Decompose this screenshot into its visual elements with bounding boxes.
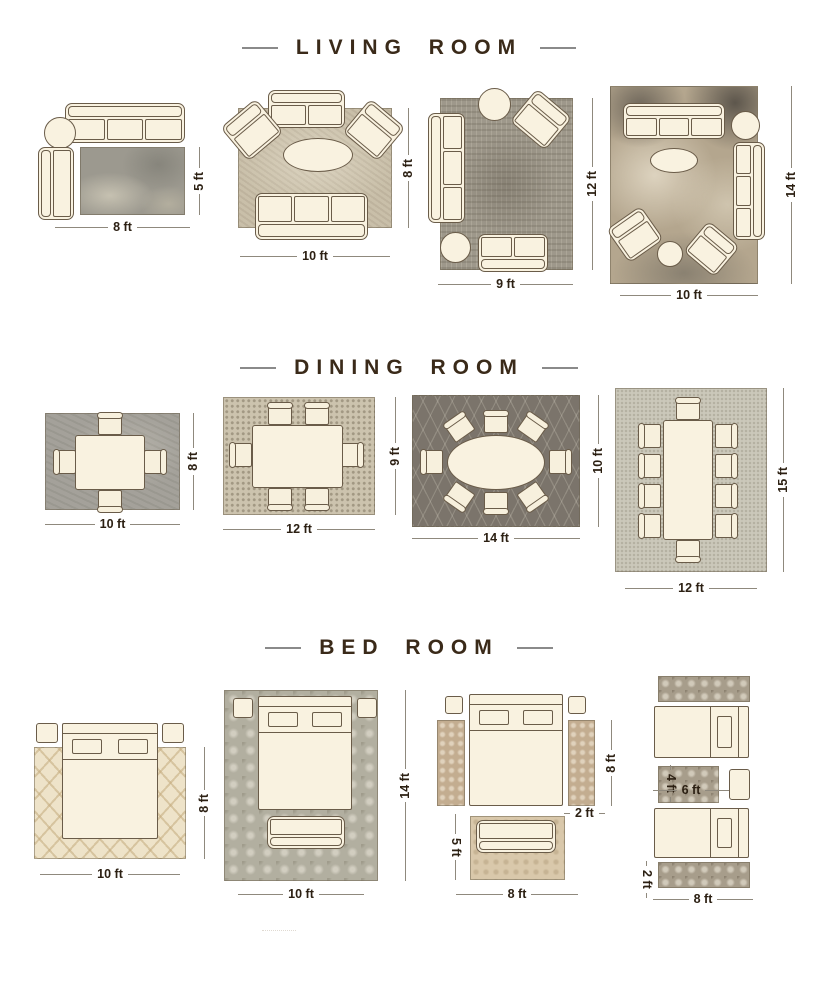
dim-line — [128, 874, 180, 875]
sofa-seats — [481, 237, 545, 257]
living-layout-9x12: 9 ft 12 ft — [428, 88, 608, 298]
dining-chair — [641, 454, 661, 478]
title-dash — [242, 47, 278, 49]
dim-line — [653, 790, 677, 791]
round-side-table — [44, 117, 76, 149]
dining-chair — [676, 540, 700, 560]
dim-line — [240, 256, 297, 257]
dim-line — [520, 284, 573, 285]
cushion — [258, 196, 292, 222]
dim-line — [592, 201, 593, 270]
dimension-width: 10 ft — [240, 250, 390, 263]
dining-chair — [98, 415, 122, 435]
sofa-back — [479, 841, 553, 850]
dining-chair — [232, 443, 252, 467]
dim-line — [670, 797, 671, 802]
dim-line — [646, 861, 647, 866]
nightstand — [233, 698, 253, 718]
dimension-height: 5 ft — [448, 814, 463, 880]
dining-chair — [305, 405, 329, 425]
dim-line — [791, 202, 792, 284]
dimension-height: 15 ft — [776, 388, 791, 572]
sofa-seats — [258, 196, 365, 222]
dimension-height: 8 ft — [186, 413, 201, 510]
section-title-bed-room: BED ROOM — [0, 636, 818, 660]
dining-layout-12x15: 12 ft 15 ft — [615, 388, 810, 603]
bed-blanket — [63, 760, 157, 838]
title-dash — [517, 647, 553, 649]
dim-line — [408, 181, 409, 228]
dim-line — [653, 899, 689, 900]
dim-line — [40, 874, 92, 875]
runner-rug — [437, 720, 465, 806]
dim-line — [405, 802, 406, 881]
dimension-height: 8 ft — [197, 747, 212, 859]
cushion — [736, 176, 751, 205]
dimension-height: 9 ft — [388, 397, 403, 515]
bed-layout-10x8: 10 ft 8 ft — [20, 695, 220, 895]
sofa-back — [68, 106, 182, 117]
pillow-row — [259, 707, 351, 733]
pillow — [479, 710, 509, 725]
dimension-width: 10 ft — [238, 888, 364, 901]
dim-line — [598, 395, 599, 444]
dim-line — [137, 227, 190, 228]
dim-line — [783, 388, 784, 463]
dimension-height: 12 ft — [585, 98, 600, 270]
dining-table — [75, 435, 145, 490]
dining-chair — [341, 443, 361, 467]
bed-blanket — [655, 707, 710, 757]
pillow — [717, 716, 732, 748]
dim-line — [223, 529, 281, 530]
sofa — [255, 193, 368, 240]
cushion — [308, 105, 343, 125]
bed-layout-runners: 8 ft 2 ft 5 ft 8 ft — [428, 692, 623, 907]
sofa-back — [431, 116, 441, 220]
dimension-width: 10 ft — [40, 868, 180, 881]
section-title-text: DINING ROOM — [294, 356, 524, 380]
cushion — [270, 819, 342, 835]
sofa-back — [626, 106, 722, 116]
round-side-table — [440, 232, 471, 263]
dim-line — [395, 469, 396, 515]
round-side-table — [657, 241, 683, 267]
dining-layout-14x10: 14 ft 10 ft — [410, 390, 610, 550]
runner-rug — [658, 676, 750, 702]
dimension-width: 8 ft — [653, 893, 753, 906]
pillow — [72, 739, 102, 754]
pillow-row — [63, 734, 157, 760]
section-title-living-room: LIVING ROOM — [0, 36, 818, 60]
dim-line — [709, 588, 757, 589]
dining-chair — [715, 484, 735, 508]
pillow — [268, 712, 298, 727]
oval-dining-table — [447, 435, 545, 490]
sofa-seats — [479, 823, 553, 839]
dim-line — [531, 894, 578, 895]
nightstand — [568, 696, 586, 714]
dining-table — [663, 420, 713, 540]
cushion — [145, 119, 182, 140]
dimension-runner-width: 2 ft — [564, 807, 604, 820]
living-layout-8x5: 8 ft 5 ft — [30, 95, 230, 245]
dim-line — [598, 478, 599, 527]
dim-line — [670, 765, 671, 770]
dimension-runner-height: 8 ft — [604, 720, 619, 806]
dim-line — [438, 284, 491, 285]
sofa — [428, 113, 465, 223]
title-dash — [540, 47, 576, 49]
pillow — [118, 739, 148, 754]
rug-size-guide: LIVING ROOM 8 ft 5 ft — [0, 0, 818, 1000]
pillow — [523, 710, 553, 725]
sofa-back — [41, 150, 51, 217]
dim-line — [317, 529, 375, 530]
cushion — [691, 118, 722, 136]
title-dash — [240, 367, 276, 369]
dining-chair — [484, 413, 508, 433]
cushion — [331, 196, 365, 222]
cushion — [659, 118, 690, 136]
coffee-table — [650, 148, 698, 173]
dim-line — [204, 747, 205, 790]
sofa-back — [271, 93, 342, 103]
bed-blanket — [655, 809, 710, 857]
runner-rug — [658, 862, 750, 888]
dim-line — [611, 720, 612, 750]
dim-line — [319, 894, 364, 895]
dim-line — [625, 588, 673, 589]
round-side-table — [478, 88, 511, 121]
sofa-seats — [736, 145, 751, 237]
sofa-seats — [626, 118, 722, 136]
cushion — [107, 119, 144, 140]
dim-line — [408, 108, 409, 155]
cushion — [479, 823, 553, 839]
dimension-height: 5 ft — [192, 147, 207, 215]
dim-line — [620, 295, 671, 296]
dimension-height: 8 ft — [401, 108, 416, 228]
dim-line — [333, 256, 390, 257]
dim-line — [611, 776, 612, 806]
sofa-back — [258, 224, 365, 237]
nightstand — [36, 723, 58, 743]
dimension-width: 8 ft — [55, 221, 190, 234]
dimension-width: 10 ft — [45, 518, 180, 531]
dimension-height: 10 ft — [591, 395, 606, 527]
bed — [258, 696, 352, 810]
twin-bed — [654, 808, 749, 858]
dining-chair — [484, 492, 508, 512]
dim-line — [204, 816, 205, 859]
bed — [62, 723, 158, 839]
pillow — [312, 712, 342, 727]
dining-chair — [641, 424, 661, 448]
dimension-height: 14 ft — [784, 86, 799, 284]
dining-chair — [305, 488, 329, 508]
dining-chair — [641, 484, 661, 508]
dining-chair — [676, 400, 700, 420]
dining-layout-10x8: 10 ft 8 ft — [40, 400, 215, 540]
dim-line — [717, 899, 753, 900]
dim-line — [238, 894, 283, 895]
faint-smudge — [262, 930, 296, 934]
dimension-width: 10 ft — [620, 289, 758, 302]
dim-line — [592, 98, 593, 167]
dining-table — [252, 425, 343, 488]
dimension-width: 9 ft — [438, 278, 573, 291]
sofa-seats — [53, 150, 71, 217]
section-title-text: LIVING ROOM — [296, 36, 522, 60]
headboard — [63, 724, 157, 734]
sofa-seats — [271, 105, 342, 125]
nightstand — [162, 723, 184, 743]
sofa — [65, 103, 185, 143]
dimension-height: 14 ft — [398, 690, 413, 881]
dining-layout-12x9: 12 ft 9 ft — [220, 392, 410, 547]
dining-chair — [98, 490, 122, 510]
dimension-accent-width: 6 ft — [653, 784, 729, 797]
sofa — [623, 103, 725, 139]
loveseat — [478, 234, 548, 272]
sofa-back — [481, 259, 545, 269]
dimension-width: 12 ft — [223, 523, 375, 536]
dining-chair — [641, 514, 661, 538]
headboard — [470, 695, 562, 705]
dim-line — [455, 860, 456, 880]
round-side-table — [731, 111, 760, 140]
title-dash — [265, 647, 301, 649]
headboard — [259, 697, 351, 707]
pillow-section — [710, 809, 738, 857]
dimension-width: 8 ft — [456, 888, 578, 901]
dining-chair — [715, 514, 735, 538]
dim-line — [193, 413, 194, 448]
dim-line — [646, 893, 647, 898]
headboard — [738, 809, 748, 857]
dim-line — [599, 813, 605, 814]
dimension-width: 12 ft — [625, 582, 757, 595]
section-title-text: BED ROOM — [319, 636, 499, 660]
cushion — [736, 208, 751, 237]
dim-line — [45, 524, 95, 525]
dining-chair — [144, 450, 164, 474]
coffee-table — [283, 138, 353, 172]
dim-line — [130, 524, 180, 525]
dim-line — [55, 227, 108, 228]
dining-chair — [715, 424, 735, 448]
twin-bed — [654, 706, 749, 758]
dimension-runner-height: 2 ft — [639, 861, 654, 889]
dim-line — [405, 690, 406, 769]
bed-blanket — [470, 731, 562, 805]
cushion — [736, 145, 751, 174]
dim-line — [455, 814, 456, 834]
dim-line — [705, 790, 729, 791]
dim-line — [199, 194, 200, 215]
cushion — [481, 237, 512, 257]
living-layout-10x8: 10 ft 8 ft — [225, 88, 425, 268]
dining-chair — [268, 405, 292, 425]
nightstand — [729, 769, 750, 800]
dining-chair — [715, 454, 735, 478]
dim-line — [791, 86, 792, 168]
bed — [469, 694, 563, 806]
cushion — [443, 187, 462, 220]
dim-line — [199, 147, 200, 168]
bed-layout-twin-runners: 4 ft 6 ft 2 ft 8 ft — [635, 672, 815, 912]
area-rug — [80, 147, 185, 215]
sofa — [733, 142, 765, 240]
cushion — [294, 196, 328, 222]
title-dash — [542, 367, 578, 369]
nightstand — [357, 698, 377, 718]
runner-rug — [568, 720, 595, 806]
nightstand — [445, 696, 463, 714]
section-title-dining-room: DINING ROOM — [0, 356, 818, 380]
cushion — [443, 151, 462, 184]
sofa-back — [270, 837, 342, 846]
armchair — [38, 147, 74, 220]
dimension-width: 14 ft — [412, 532, 580, 545]
pillow-section — [710, 707, 738, 757]
living-layout-10x14: 10 ft 14 ft — [608, 82, 808, 307]
dining-chair — [423, 450, 443, 474]
pillow — [717, 818, 732, 849]
sofa-seats — [270, 819, 342, 835]
dim-line — [395, 397, 396, 443]
bed-layout-10x14: 10 ft 14 ft — [222, 688, 417, 908]
sofa-seats — [68, 119, 182, 140]
headboard — [738, 707, 748, 757]
dining-chair — [56, 450, 76, 474]
bench — [267, 816, 345, 849]
dim-line — [783, 497, 784, 572]
bench — [476, 820, 556, 853]
pillow-row — [470, 705, 562, 731]
sofa-back — [753, 145, 762, 237]
dining-chair — [549, 450, 569, 474]
cushion — [443, 116, 462, 149]
cushion — [514, 237, 545, 257]
dim-line — [193, 475, 194, 510]
dim-line — [412, 538, 478, 539]
sofa-seats — [443, 116, 462, 220]
bed-blanket — [259, 733, 351, 809]
dim-line — [564, 813, 570, 814]
cushion — [53, 150, 71, 217]
cushion — [626, 118, 657, 136]
dining-chair — [268, 488, 292, 508]
loveseat — [268, 90, 345, 128]
dim-line — [707, 295, 758, 296]
dim-line — [456, 894, 503, 895]
dim-line — [514, 538, 580, 539]
